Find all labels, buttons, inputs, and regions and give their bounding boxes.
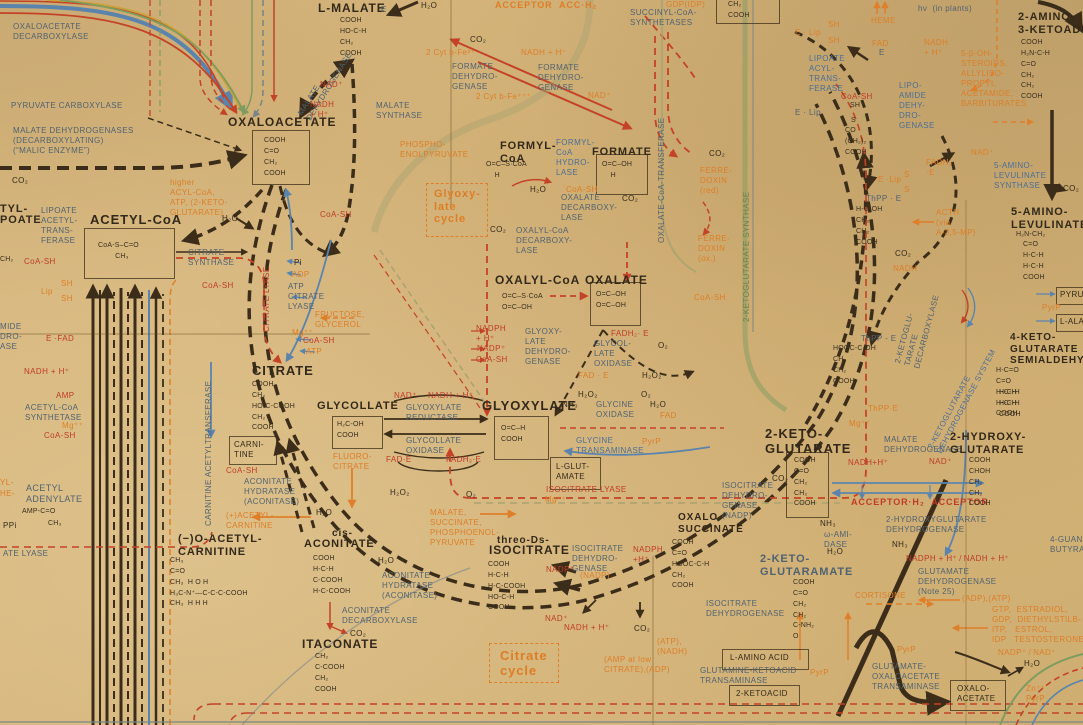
label-o: O₂ bbox=[466, 490, 476, 500]
label-zn-pyrp: Zn⁺⁺ PyrP bbox=[1026, 684, 1045, 704]
label-coa-sh: CoA-SH bbox=[694, 293, 726, 303]
label-coa-sh: CoA-SH bbox=[202, 281, 234, 291]
label-sh: SH bbox=[61, 294, 73, 304]
label-ch: CH₂ bbox=[0, 255, 13, 266]
succinyl-coa-synthetases: SUCCINYL-CoA- SYNTHETASES bbox=[630, 8, 697, 28]
glutamate-dehydrogenase: GLUTAMATE DEHYDROGENASE (Note 25) bbox=[918, 567, 997, 597]
label-e: E bbox=[381, 5, 387, 15]
label-nad: NAD⁺ bbox=[394, 391, 417, 401]
label-h-c-oh-cooh: H₂C-OH COOH bbox=[337, 420, 364, 442]
malic-enzyme: MALATE DEHYDROGENASES (DECARBOXYLATING) … bbox=[13, 126, 134, 156]
label-cooh-c-o-ch-ch-c-nh-o: COOH C=O CH₂ CH₂ C-NH₂ O bbox=[793, 578, 815, 643]
label-co: CO₂ bbox=[490, 225, 506, 235]
label-nadh-h: NADH + H⁺ bbox=[24, 367, 69, 377]
glycollate: GLYCOLLATE bbox=[317, 400, 399, 413]
formyl-coa-hydrolase: FORMYL- CoA HYDRO- LASE bbox=[556, 138, 595, 178]
label-ch-cooh: CH₂ COOH bbox=[728, 0, 750, 22]
label-nh: NH₃ bbox=[562, 400, 578, 410]
label-pyrp: PyrP bbox=[642, 437, 661, 447]
label-dro: DRO- bbox=[0, 332, 22, 342]
label-h-o: H₂O bbox=[222, 214, 238, 224]
label-coa-sh: CoA-SH bbox=[303, 336, 335, 346]
label-s: S bbox=[904, 170, 910, 180]
label-malate-succinate-phosphoenol-pyruvate: MALATE, SUCCINATE, PHOSPHOENOL- PYRUVATE bbox=[430, 508, 499, 548]
label-glycol-late-oxidase: GLYCOL- LATE OXIDASE bbox=[594, 339, 632, 369]
label-aconitate-hydratase-aconitase: ACONITATE HYDRATASE (ACONITASE) bbox=[382, 571, 437, 601]
pathway-line-21 bbox=[243, 0, 252, 114]
pathway-line-122 bbox=[230, 713, 248, 725]
label-nadh-h: NADH + H⁺ bbox=[428, 391, 473, 401]
label-h-o: H₂O₂ bbox=[390, 488, 410, 498]
pathway-line-13 bbox=[170, 280, 176, 725]
glycine-oxidase: GLYCINE OXIDASE bbox=[596, 400, 634, 420]
formate-dehydrogenase-2: FORMATE DEHYDRO- GENASE bbox=[538, 63, 584, 93]
carnitine-acetyltransferase: CARNITINE ACETYLTRANSFERASE bbox=[204, 381, 214, 526]
label-e-lip: E · Lip bbox=[795, 28, 821, 38]
carnitine: CARNI- TINE bbox=[234, 440, 264, 460]
label-nadp: NADP⁺ bbox=[546, 565, 574, 575]
4-ketoglutarate-semialdehyde: 4-KETO- GLUTARATE SEMIALDEHYDE bbox=[1010, 332, 1083, 367]
oxalyl-coa-decarboxylase: OXALYL-CoA DECARBOXY- LASE bbox=[516, 226, 572, 256]
label-mg: Mg⁺⁺ bbox=[849, 419, 870, 429]
label-cooh-c-o-ch-cooh: COOH C=O CH₂ COOH bbox=[264, 136, 286, 179]
label-h-c-h-h-c-h-cooh: H-C-H H-C-H COOH bbox=[999, 388, 1021, 421]
label-atp-nadh: (ATP), (NADH) bbox=[657, 637, 687, 657]
isocitrate-dehydrogenase: ISOCITRATE DEHYDROGENASE bbox=[706, 599, 785, 619]
label-adp-atp: (ADP),(ATP) bbox=[962, 594, 1011, 604]
label-fadh-e: FADH₂· E bbox=[611, 329, 649, 339]
label-h-o: H₂O bbox=[421, 1, 437, 11]
label-o-c-oh-o-c-oh: O=C–OH O=C–OH bbox=[596, 290, 626, 312]
label-e-lip: E · Lip bbox=[795, 108, 821, 118]
label-nadp: (NADP) bbox=[580, 571, 610, 581]
label-pyrp: PyrP bbox=[897, 645, 916, 655]
label-mide: MIDE bbox=[0, 322, 22, 332]
label-he: HE- bbox=[0, 489, 15, 499]
label-h-o: H₂O bbox=[530, 185, 546, 195]
pathway-line-27 bbox=[148, 118, 240, 150]
aconitate-decarboxylase: ACONITATE DECARBOXYLASE bbox=[342, 606, 418, 626]
label-o-c-h-cooh: O=C–H COOH bbox=[501, 424, 526, 446]
label-h-o: H₂O bbox=[378, 556, 394, 566]
label-nadph-h-nadh-h: NADPH + H⁺ / NADH + H⁺ bbox=[906, 554, 1009, 564]
isocitrate-lyase: ISOCITRATE LYASE bbox=[546, 485, 627, 495]
l-alanine: L-ALANINE bbox=[1060, 317, 1083, 327]
label-acth-via-a-3-5-mp: ACTH (via A-3,5-MP) bbox=[936, 208, 976, 238]
label-ch: CH₃ bbox=[48, 519, 62, 530]
glyoxylate-cycle-badge: Glyoxy- late cycle bbox=[434, 188, 481, 226]
pathway-line-101 bbox=[962, 290, 968, 322]
label-amp-at-low-citrate-adp: (AMP at low CITRATE),(ADP) bbox=[604, 655, 670, 675]
label-nadh-h: NADH+H⁺ bbox=[848, 458, 888, 468]
label-h-in-plants: hν (in plants) bbox=[918, 4, 972, 14]
4-guanidinobutyrate: 4-GUANIDINO- BUTYRATE bbox=[1050, 535, 1083, 555]
label-poate: POATE bbox=[0, 214, 42, 227]
label-heme: HEME bbox=[871, 16, 896, 26]
label-mg: Mg⁺⁺ bbox=[62, 421, 83, 431]
pathway-line-32 bbox=[286, 190, 292, 250]
label-nh: NH₃ bbox=[820, 519, 836, 529]
l-glutamate: L-GLUT- AMATE bbox=[556, 462, 589, 482]
label-nh: NH₃ bbox=[892, 540, 908, 550]
label-o-c-s-coa-o-c-oh: O=C–S·CoA O=C–OH bbox=[502, 292, 543, 314]
label-fad: FAD bbox=[660, 411, 677, 421]
label-mg: Mg⁺⁺ bbox=[545, 495, 566, 505]
pathway-line-22 bbox=[254, 0, 263, 116]
label-sh: SH bbox=[828, 36, 840, 46]
label-fad-e: FAD·E bbox=[386, 455, 412, 465]
label-coa-sh: CoA-SH bbox=[44, 431, 76, 441]
label-cortisone: CORTISONE bbox=[855, 591, 906, 601]
label-pi: Pi bbox=[294, 258, 302, 268]
label-fadh-e: FADH₂ ·E bbox=[926, 158, 952, 178]
label-nad: NAD⁺ bbox=[971, 148, 994, 158]
label-h-o: H₂O₂ bbox=[578, 390, 598, 400]
pathway-line-19 bbox=[200, 0, 226, 114]
pathway-line-26 bbox=[0, 156, 242, 168]
label-cooh-choh-ch-ch-cooh: COOH CHOH CH₂ CH₂ COOH bbox=[969, 456, 991, 510]
pathway-line-61 bbox=[668, 32, 692, 154]
label-e-lip: E ·Lip bbox=[878, 175, 901, 185]
pathway-line-14 bbox=[0, 6, 230, 106]
label-fluoro-citrate: FLUORO- CITRATE bbox=[333, 452, 372, 472]
got-transaminase: GLUTAMATE- OXALOACETATE TRANSAMINASE bbox=[872, 662, 940, 692]
label-nadh-h: NADH + H⁺ bbox=[924, 38, 948, 58]
pathway-line-81 bbox=[330, 626, 346, 633]
pathway-line-67 bbox=[703, 202, 710, 234]
label-coa-sh: CoA-SH bbox=[476, 355, 508, 365]
label-ferre-doxin-ox: FERRE- DOXIN (ox.) bbox=[698, 234, 730, 264]
glutamine-ketoacid-transaminase: GLUTAMINE-KETOACID TRANSAMINASE bbox=[700, 666, 797, 686]
label-cooh-h-n-c-h-c-o-ch-ch-cooh: COOH H₂N-C-H C=O CH₂ CH₂ COOH bbox=[1021, 38, 1050, 103]
label-ase: ASE bbox=[0, 342, 17, 352]
label-o-c-s-coa-h: O=C–S·CoA H bbox=[486, 160, 527, 182]
label-nadp-nad: NADP⁺ / NAD⁺ bbox=[998, 648, 1056, 658]
2-hydroxyglutarate-dehydrogenase: 2-HYDROXYGLUTARATE DEHYDROGENASE bbox=[886, 515, 987, 535]
2-ketoglutarate: 2-KETO- GLUTARATE bbox=[765, 427, 851, 457]
citrate-cycle-badge: Citrate cycle bbox=[500, 649, 547, 679]
acetyl-adenylate: ACETYL ADENYLATE bbox=[26, 483, 82, 506]
label-atp: ATP bbox=[306, 347, 322, 357]
label-sh: SH bbox=[61, 279, 73, 289]
label-co: CO₂ bbox=[895, 249, 911, 259]
label-5-oh-steroids-allyliso-propyl-acetamide-: 5-β-OH- STEROIDS, ALLYLISO- PROPYL ACETA… bbox=[961, 49, 1027, 109]
pathway-line-119 bbox=[390, 2, 418, 14]
pathway-line-64 bbox=[662, 0, 696, 272]
l-amino-acid: L-AMINO ACID bbox=[730, 653, 789, 663]
formate-dehydrogenase-1: FORMATE DEHYDRO- GENASE bbox=[452, 62, 498, 92]
label-thpp-e: ThPP - E bbox=[861, 334, 897, 344]
label-ferre-doxin-red: FERRE- DOXIN (red) bbox=[700, 166, 732, 196]
label-ch-c-cooh-ch-cooh: CH₂ C-COOH CH₂ COOH bbox=[315, 652, 345, 695]
2-amino-3-ketoadipate: 2-AMINO- 3-KETOADIPATE bbox=[1018, 11, 1083, 36]
pathway-line-90 bbox=[374, 255, 480, 408]
label-s: S bbox=[904, 185, 910, 195]
label-isocitrate-dehydro-genase-nadp: ISOCITRATE DEHYDRO- GENASE (NADP) bbox=[722, 481, 773, 521]
label-h-c-oh-ch-ch-cooh: H-C-OH CH₂ CH₂ COOH bbox=[856, 205, 882, 248]
label-co: CO₂ bbox=[470, 35, 486, 45]
label-e: E bbox=[879, 48, 885, 58]
label-nadh-h: NADH + H⁺ bbox=[521, 48, 566, 58]
label-gtp-estradiol-gdp-diethylstilb-itp-estro: GTP, ESTRADIOL, GDP, DIETHYLSTILB- ITP, … bbox=[992, 605, 1083, 645]
formate: FORMATE bbox=[592, 146, 652, 159]
oxalate-coa-transferase: OXALATE-CoA-TRANSFERASE bbox=[657, 117, 667, 243]
pathway-line-71 bbox=[850, 48, 868, 60]
label-co: CO₂ bbox=[1063, 184, 1079, 194]
pathway-line-120 bbox=[194, 704, 214, 720]
label-co: CO₂ bbox=[634, 624, 650, 634]
label-h-n-ch: H₂N-CH₂ bbox=[1016, 230, 1045, 241]
pyruvate-carboxylase: PYRUVATE CARBOXYLASE bbox=[11, 101, 123, 111]
pathway-chart: OXALOACETATE DECARBOXYLASEPYRUVATE CARBO… bbox=[0, 0, 1083, 725]
acetyl-coa-synthetase: ACETYL-CoA SYNTHETASE bbox=[25, 403, 82, 423]
ala-synthase: 5-AMINO- LEVULINATE SYNTHASE bbox=[994, 161, 1046, 191]
lipoate-acetyltransferase: LIPOATE ACETYL- TRANS- FERASE bbox=[41, 206, 78, 246]
label-cooh-c-o-ch-ch-cooh: COOH C=O CH₂ CH₂ COOH bbox=[794, 456, 816, 510]
label-amp-c-o: AMP-C=O bbox=[22, 507, 56, 518]
lipoamide-dehydrogenase: LIPO- AMIDE DEHY- DRO- GENASE bbox=[899, 81, 935, 131]
pathway-line-102 bbox=[968, 288, 975, 326]
label-acetyl-carnitine: (+)ACETYL- CARNITINE bbox=[226, 511, 274, 531]
label-pyrp: PyrP bbox=[1042, 303, 1061, 313]
citrate-synthase: CITRATE SYNTHASE bbox=[188, 248, 234, 268]
oxalate: OXALATE bbox=[585, 274, 648, 288]
pathway-line-89 bbox=[380, 250, 486, 404]
aconitase: ACONITATE HYDRATASE (ACONITASE) bbox=[244, 477, 299, 507]
label-nadh: NADH bbox=[893, 264, 917, 274]
label-sh: SH bbox=[850, 101, 860, 112]
label-thpp-e: ThPP·E bbox=[868, 404, 898, 414]
isocitrate-dehydrogenase-nadp: ISOCITRATE DEHYDRO- GENASE bbox=[572, 544, 623, 574]
pyruvate: PYRUVATE bbox=[1060, 290, 1083, 300]
isocitrate: ISOCITRATE bbox=[489, 544, 570, 558]
label-h-o: H₂O bbox=[650, 400, 666, 410]
label-e-fad: E ·FAD bbox=[46, 334, 74, 344]
label-fad-e: FAD · E bbox=[578, 371, 609, 381]
l-malate: L-MALATE bbox=[318, 2, 386, 16]
2-ketoglutarate-synthase: 2-KETOGLUTARATE SYNTHASE bbox=[742, 191, 752, 322]
glycine-transaminase: GLYCINE TRANSAMINASE bbox=[576, 436, 644, 456]
citrate-lyase: CITRATE LYASE bbox=[262, 266, 272, 332]
label-nad: NAD⁺ bbox=[929, 457, 952, 467]
label-nadph-h: NADPH + H⁺ bbox=[476, 324, 506, 344]
label-ppi: PPi bbox=[3, 521, 17, 531]
cis-aconitate: ACONITATE bbox=[304, 538, 375, 551]
label-coa-sh: CoA-SH bbox=[320, 210, 352, 220]
pathway-line-33 bbox=[236, 218, 252, 228]
lipoate-acyltransferase: LIPOATE ACYL- TRANS- FERASE bbox=[809, 54, 845, 94]
label-fadh-e: FADH₂·E bbox=[446, 455, 481, 465]
label-cooh-ch-ho-c-cooh-ch-cooh: COOH CH₂ HO-C-COOH CH₂ COOH bbox=[252, 380, 295, 434]
label-hooc-c-oh-ch-ch-cooh: HOOC-C-OH CH₂ CH₂ COOH bbox=[833, 344, 876, 387]
pathway-line-96 bbox=[1008, 668, 1022, 676]
label-nadp: NADP⁺ bbox=[477, 344, 505, 354]
2-hydroxyglutarate: 2-HYDROXY- GLUTARATE bbox=[950, 431, 1026, 456]
label-coa-sh: CoA-SH bbox=[24, 257, 56, 267]
label-gdp-idp: GDP(IDP) bbox=[666, 0, 705, 10]
label-ate-lyase: ATE LYASE bbox=[3, 549, 48, 559]
label-co-ch-cooh: CO (CH₂)₂ COOH bbox=[845, 126, 867, 159]
label-adp: ADP bbox=[292, 270, 310, 280]
label-nadh-h: NADH + H⁺ bbox=[564, 623, 609, 633]
label-c-o-h-c-h-h-c-h-cooh: C=O H-C-H H-C-H COOH bbox=[1023, 240, 1045, 283]
label-nadph-h: NADPH +H⁺ bbox=[633, 545, 663, 565]
label-cooh-c-o-hooc-c-h-ch-cooh: COOH C=O HOOC-C-H CH₂ COOH bbox=[672, 538, 709, 592]
label-h-o: H₂O bbox=[316, 508, 332, 518]
oxalyl-coa: OXALYL-CoA bbox=[495, 274, 580, 288]
label-cooh-h-c-h-c-cooh-h-c-cooh: COOH H-C-H C-COOH H-C-COOH bbox=[313, 554, 350, 597]
oxaloacetate-bottom: OXALO- ACETATE bbox=[957, 684, 996, 704]
label-sh: SH bbox=[828, 20, 840, 30]
label-co: CO₂ bbox=[772, 474, 788, 484]
2-ketoacid: 2-KETOACID bbox=[736, 689, 788, 699]
itaconate: ITACONATE bbox=[302, 638, 378, 652]
label-yl: YL- bbox=[0, 478, 14, 488]
acetyl-coa: ACETYL-CoA bbox=[90, 213, 182, 228]
glyoxylate-reductase: GLYOXYLATE REDUCTASE bbox=[406, 403, 462, 423]
label-co: CO₂ bbox=[709, 149, 725, 159]
label-cooh-h-c-h-h-c-cooh-ho-c-h-cooh: COOH H-C-H H-C-COOH HO-C-H COOH bbox=[488, 560, 525, 614]
citrate: CITRATE bbox=[252, 364, 314, 379]
label-fructose-glycerol: FRUCTOSE, GLYCEROL bbox=[315, 310, 365, 330]
o-acetyl-carnitine: (−)O-ACETYL- CARNITINE bbox=[178, 533, 262, 558]
label-coa-sh: CoA-SH bbox=[226, 466, 258, 476]
5-aminolevulinate: 5-AMINO- LEVULINATE bbox=[1011, 206, 1083, 231]
label-phospho-enolpyruvate: PHOSPHO- ENOLPYRUVATE bbox=[400, 140, 469, 160]
oxalate-decarboxylase: OXALATE DECARBOXY- LASE bbox=[561, 193, 617, 223]
label-ch-c-o-ch-h-o-h-h-c-n-c-c-c-cooh-ch-h-h-: CH₃ C=O CH₃ H O H H₃C-N⁺—C-C-C-COOH CH₃ … bbox=[170, 556, 248, 610]
label-nad: NAD⁺ bbox=[320, 80, 343, 90]
label-thpp-e: ThPP · E bbox=[866, 194, 902, 204]
label-o: O₂ bbox=[658, 341, 668, 351]
label-acceptor-acc-h: ACCEPTOR ACC·H₂ bbox=[495, 0, 597, 10]
2-ketoglutaramate: 2-KETO- GLUTARAMATE bbox=[760, 553, 853, 578]
label-amp: AMP bbox=[56, 391, 75, 401]
label-co: CO₂ bbox=[622, 194, 638, 204]
label-o: O₂ bbox=[641, 390, 651, 400]
label-h-o: H₂O₂ bbox=[642, 371, 662, 381]
glycollate-oxidase: GLYCOLLATE OXIDASE bbox=[406, 436, 461, 456]
atp-citrate-lyase: ATP CITRATE LYASE bbox=[288, 282, 324, 312]
label-pyrp: PyrP bbox=[810, 668, 829, 678]
oxaloacetate-decarboxylase: OXALOACETATE DECARBOXYLASE bbox=[13, 22, 89, 42]
label-lip: Lip bbox=[41, 287, 53, 297]
label-o-c-oh-h: O=C–OH H bbox=[602, 160, 632, 182]
label-coa-s-c-o-ch: CoA-S–C=O CH₃ bbox=[98, 241, 139, 263]
label-2-cyt-b-fe: 2 Cyt b-Fe⁺⁺⁺ bbox=[476, 92, 531, 102]
label-co: CO₂ bbox=[12, 176, 28, 186]
glyoxylate-dehydrogenase: GLYOXY- LATE DEHYDRO- GENASE bbox=[525, 327, 571, 367]
label-nad: NAD⁺ bbox=[588, 91, 611, 101]
label-2-cyt-b-fe: 2 Cyt b-Fe³⁺ bbox=[426, 48, 475, 58]
label-h-o: H₂O bbox=[1024, 659, 1040, 669]
malate-synthase: MALATE SYNTHASE bbox=[376, 101, 422, 121]
oxaloacetate: OXALOACETATE bbox=[228, 116, 336, 130]
